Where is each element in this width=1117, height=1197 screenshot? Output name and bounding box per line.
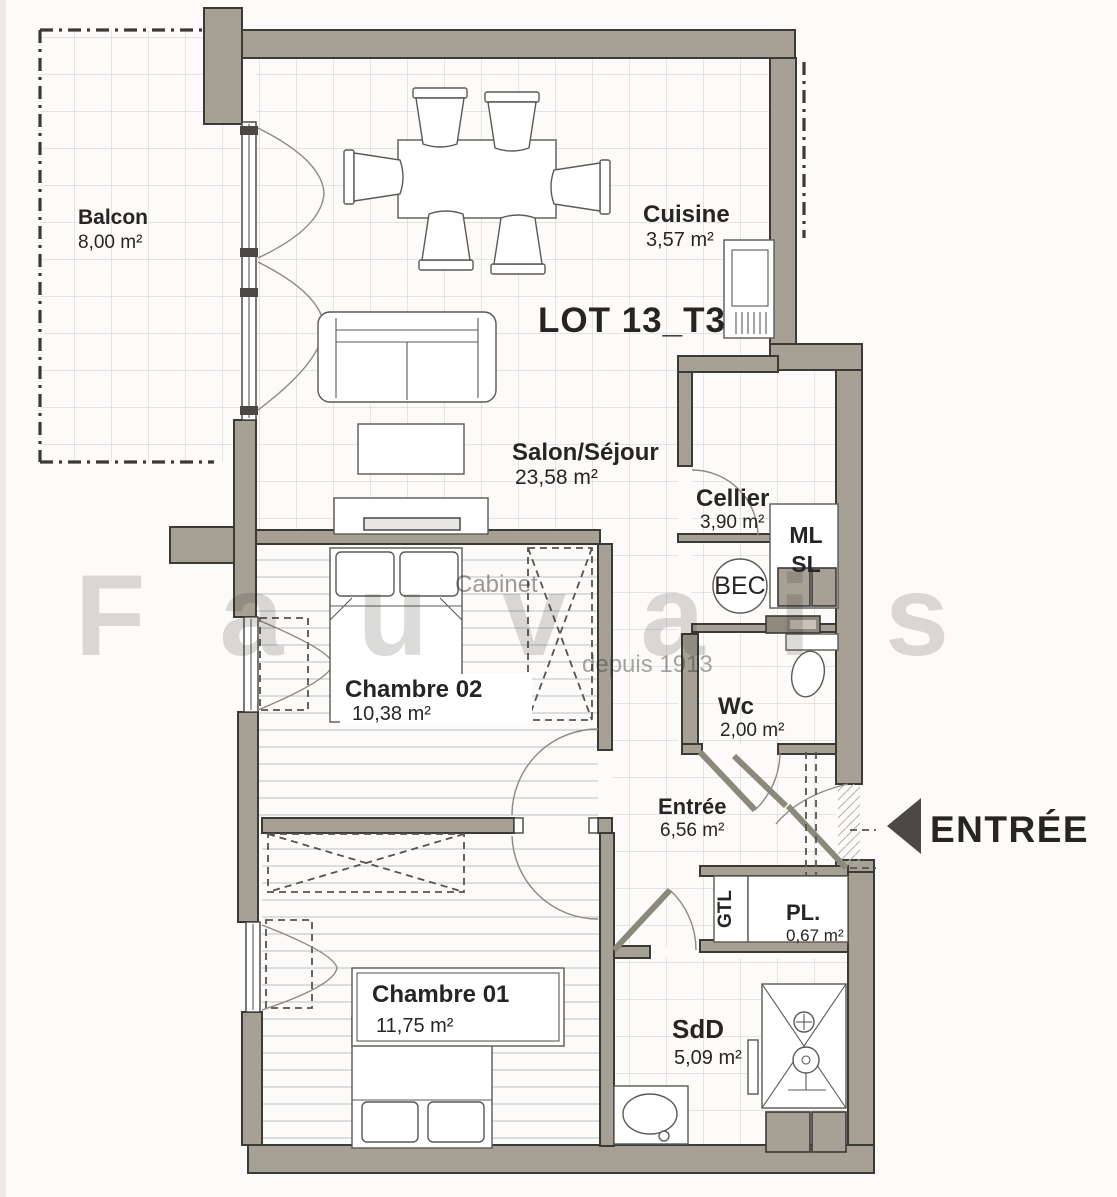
wall-right-upper: [836, 370, 862, 784]
wall-partition-bedrooms: [262, 818, 514, 833]
paper-edge: [0, 0, 6, 1197]
wall-cellier-left: [678, 372, 692, 466]
room-label-cuisine: Cuisine: [643, 201, 730, 228]
door-jamb: [514, 818, 523, 833]
floor-plan-page: Cabinet Fauvais depuis 1913 LOT 13_T3 Ba…: [0, 0, 1117, 1197]
dining-table: [398, 140, 556, 218]
entry-threshold-hatch: [838, 784, 860, 868]
room-label-salon: Salon/Séjour: [512, 439, 659, 466]
vanity-unit: [766, 1112, 810, 1152]
wall-cellier-top: [678, 356, 778, 372]
room-area-balcon: 8,00 m²: [78, 232, 142, 253]
door-jamb: [589, 818, 598, 833]
pillow: [428, 1102, 484, 1142]
room-area-chambre-01: 11,75 m²: [376, 1015, 454, 1037]
sink-bowl: [623, 1094, 677, 1134]
wall-top: [222, 30, 795, 58]
window-mullion: [240, 288, 258, 297]
room-label-chambre-02: Chambre 02: [345, 676, 482, 703]
window-mullion: [240, 126, 258, 135]
room-area-sdd: 5,09 m²: [674, 1047, 742, 1069]
door-opening-bedrooms: [514, 818, 598, 833]
wall-pillar-top-left: [204, 8, 242, 124]
pillow: [362, 1102, 418, 1142]
room-area-chambre-02: 10,38 m²: [352, 703, 431, 725]
wall-wc-bottom-a: [682, 744, 702, 754]
entry-label: ENTRÉE: [930, 809, 1089, 850]
room-label-chambre-01: Chambre 01: [372, 981, 509, 1008]
shower-screen: [748, 1040, 758, 1094]
fixture-label-gtl: GTL: [715, 890, 736, 928]
entry-arrow-icon: [887, 798, 921, 854]
fixture-label-sl: SL: [791, 551, 820, 577]
entry-marker: ENTRÉE: [887, 798, 1089, 854]
wall-wc-bottom-b: [778, 744, 836, 754]
floor-plan-drawing: Cabinet Fauvais depuis 1913 LOT 13_T3 Ba…: [0, 0, 1117, 1197]
room-label-sdd: SdD: [672, 1014, 724, 1044]
room-label-balcon: Balcon: [78, 206, 148, 229]
room-area-wc: 2,00 m²: [720, 720, 784, 741]
wall-left-lower1: [238, 712, 258, 922]
room-area-cellier: 3,90 m²: [700, 512, 764, 533]
sink-faucet: [659, 1131, 669, 1141]
wall-pl-top: [700, 866, 848, 876]
window-mullion: [240, 248, 258, 257]
fixture-label-bec: BEC: [714, 572, 765, 600]
room-area-pl: 0,67 m²: [786, 926, 844, 945]
fixture-label-ml: ML: [789, 522, 822, 548]
room-label-wc: Wc: [718, 693, 754, 720]
room-area-cuisine: 3,57 m²: [646, 229, 714, 251]
wall-chambre02-right: [598, 544, 612, 750]
wall-right-lower: [848, 872, 874, 1147]
wall-cellier-bottom: [678, 534, 778, 542]
room-area-salon: 23,58 m²: [515, 466, 598, 489]
shower-column: [793, 1047, 819, 1073]
room-area-entree: 6,56 m²: [660, 820, 724, 841]
coffee-table: [358, 424, 464, 474]
wall-left-lower2: [242, 1012, 262, 1145]
window-mullion: [240, 406, 258, 415]
room-label-entree: Entrée: [658, 794, 726, 819]
wall-stub: [598, 818, 612, 833]
lot-title: LOT 13_T3: [538, 301, 726, 340]
room-label-pl: PL.: [786, 900, 820, 925]
room-label-cellier: Cellier: [696, 485, 769, 512]
wall-chambre01-sdd: [600, 833, 614, 1146]
wall-step-right: [770, 344, 862, 370]
watermark-line3: depuis 1913: [582, 651, 713, 678]
tv: [364, 518, 460, 530]
vanity-unit: [812, 1112, 846, 1152]
